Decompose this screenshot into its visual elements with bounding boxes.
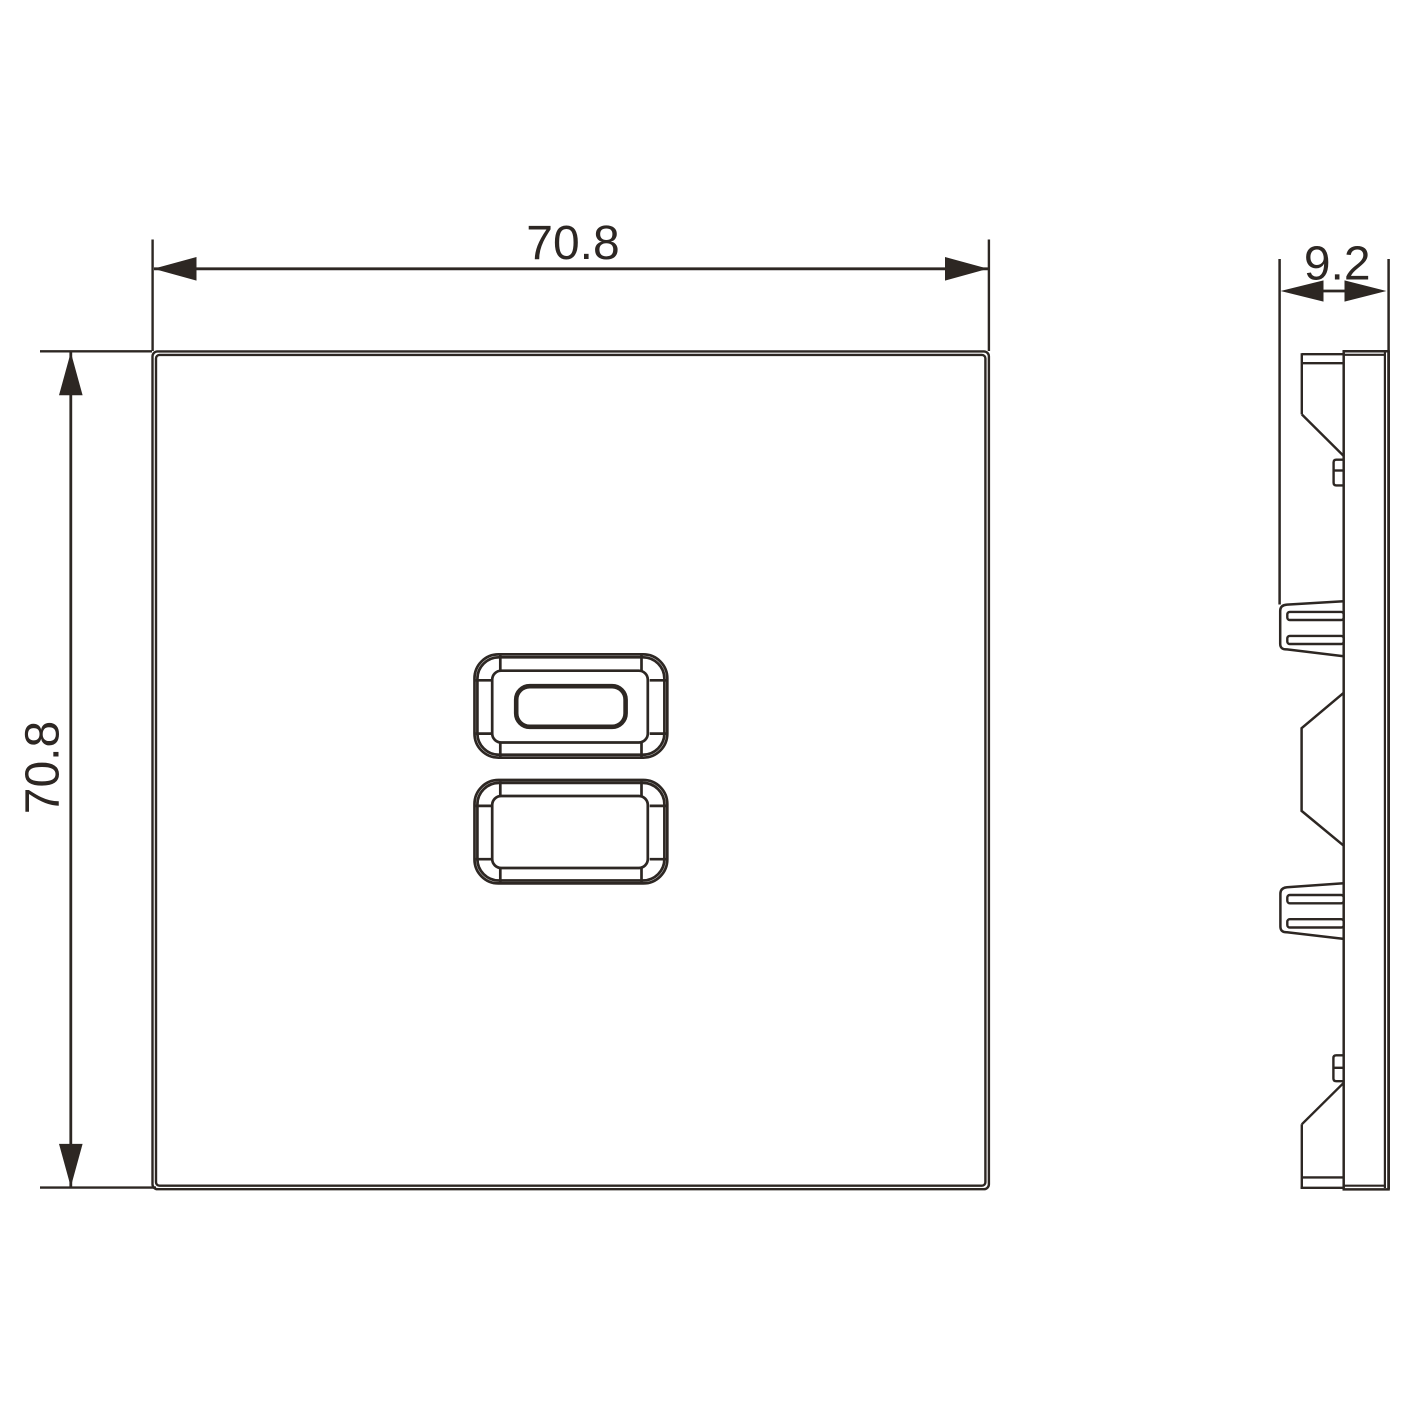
svg-text:70.8: 70.8 bbox=[526, 217, 619, 270]
svg-text:70.8: 70.8 bbox=[17, 721, 70, 814]
svg-text:9.2: 9.2 bbox=[1304, 237, 1371, 290]
